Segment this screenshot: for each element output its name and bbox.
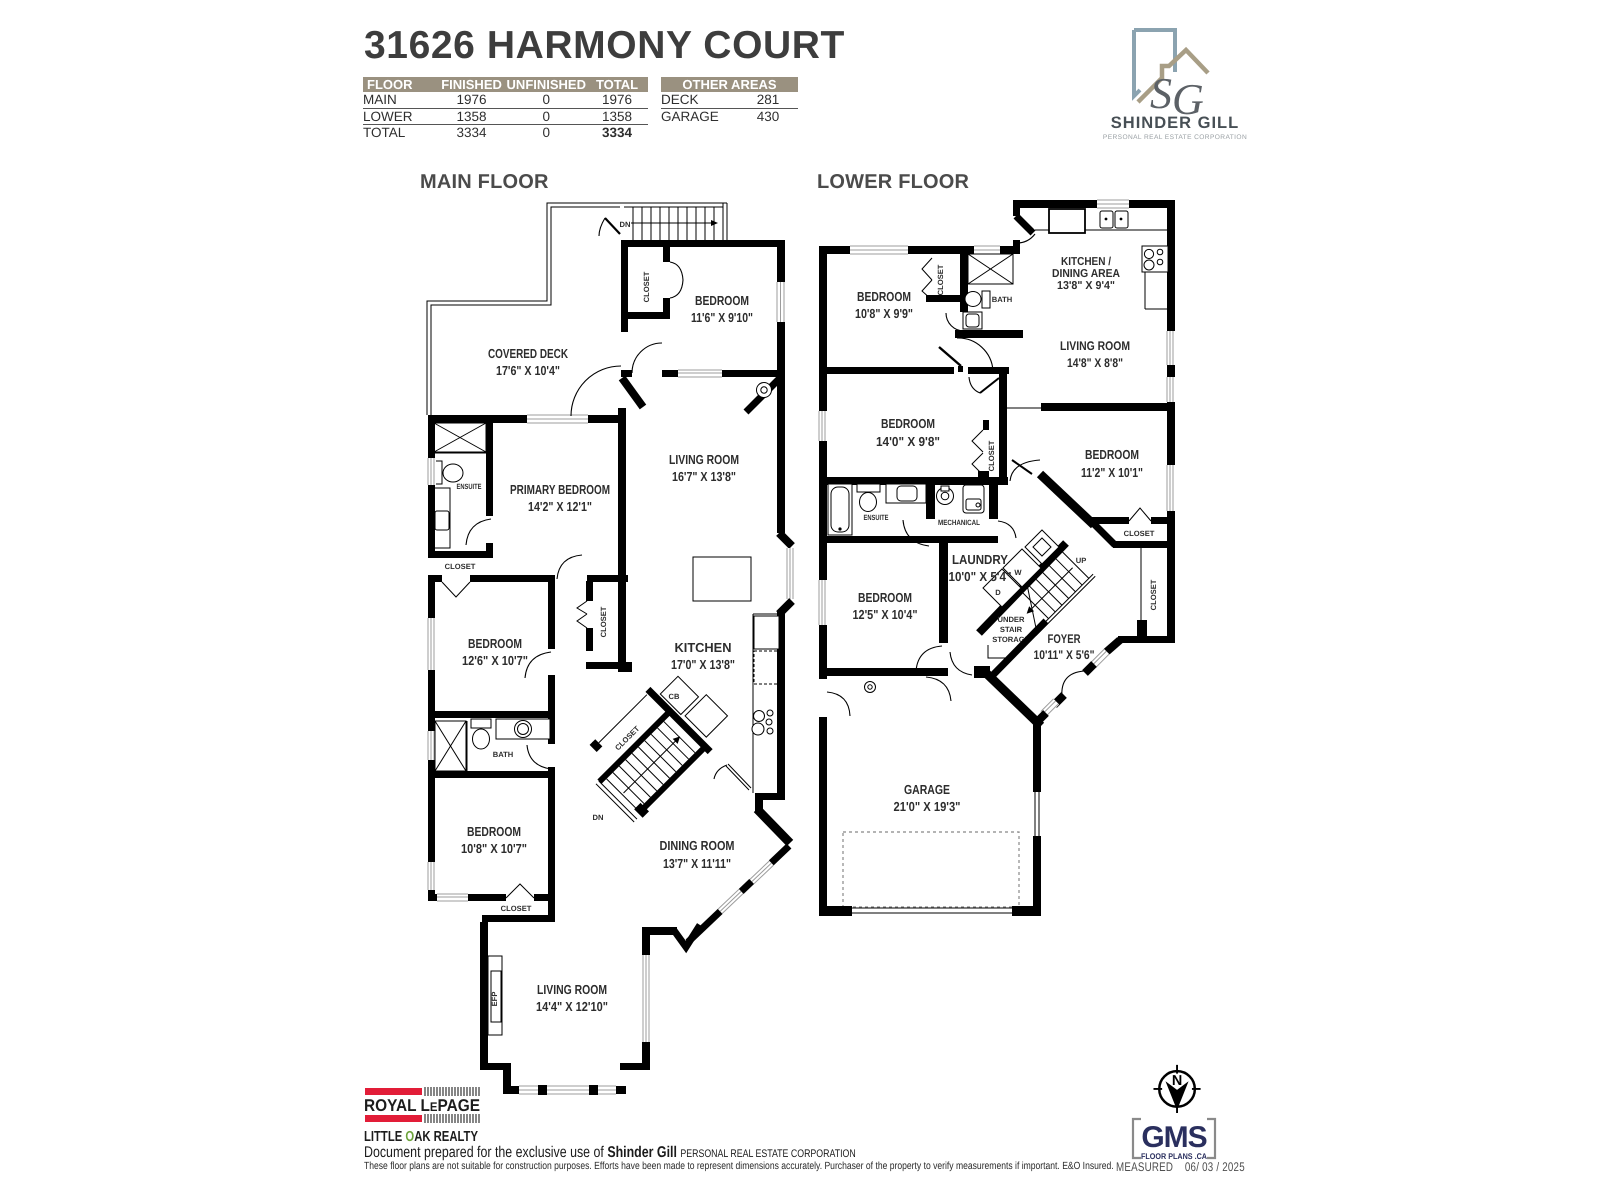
svg-text:17'0" X 13'8": 17'0" X 13'8"	[671, 657, 735, 672]
svg-text:GARAGE: GARAGE	[904, 782, 950, 797]
svg-text:KITCHEN: KITCHEN	[675, 640, 732, 655]
svg-text:CB: CB	[669, 692, 680, 701]
svg-text:DN: DN	[593, 813, 604, 822]
svg-text:10'8" X 9'9": 10'8" X 9'9"	[855, 306, 913, 321]
svg-text:KITCHEN /: KITCHEN /	[1061, 256, 1112, 268]
svg-text:ENSUITE: ENSUITE	[457, 482, 482, 491]
svg-text:UP: UP	[1076, 556, 1087, 565]
svg-text:11'2" X 10'1": 11'2" X 10'1"	[1081, 465, 1143, 480]
svg-text:BEDROOM: BEDROOM	[468, 636, 522, 651]
svg-text:MECHANICAL: MECHANICAL	[938, 518, 980, 527]
svg-text:CLOSET: CLOSET	[1124, 529, 1155, 538]
svg-text:10'8" X 10'7": 10'8" X 10'7"	[461, 841, 527, 856]
svg-text:FLOOR PLANS .CA: FLOOR PLANS .CA	[1141, 1152, 1207, 1161]
svg-text:10'11" X 5'6": 10'11" X 5'6"	[1034, 648, 1095, 662]
svg-text:11'6" X 9'10": 11'6" X 9'10"	[691, 310, 753, 325]
svg-text:BEDROOM: BEDROOM	[467, 824, 521, 839]
svg-text:12'6" X 10'7": 12'6" X 10'7"	[462, 653, 528, 668]
svg-text:LIVING ROOM: LIVING ROOM	[669, 452, 739, 467]
svg-text:14'2" X 12'1": 14'2" X 12'1"	[528, 499, 592, 514]
svg-text:10'0" X 5'4": 10'0" X 5'4"	[949, 569, 1012, 584]
svg-text:CLOSET: CLOSET	[936, 264, 945, 295]
svg-text:CLOSET: CLOSET	[1149, 579, 1158, 610]
svg-text:BEDROOM: BEDROOM	[695, 293, 749, 308]
svg-text:14'8" X 8'8": 14'8" X 8'8"	[1067, 356, 1123, 370]
svg-text:PRIMARY BEDROOM: PRIMARY BEDROOM	[510, 482, 610, 497]
svg-text:12'5" X 10'4": 12'5" X 10'4"	[853, 607, 918, 622]
svg-text:DINING ROOM: DINING ROOM	[660, 838, 735, 853]
svg-text:14'4" X 12'10": 14'4" X 12'10"	[536, 999, 608, 1014]
svg-text:BATH: BATH	[992, 295, 1013, 304]
svg-text:CLOSET: CLOSET	[987, 440, 996, 471]
svg-text:STAIR: STAIR	[1000, 625, 1023, 634]
svg-text:ROYAL LEPAGE: ROYAL LEPAGE	[364, 1096, 480, 1115]
svg-text:LAUNDRY: LAUNDRY	[952, 552, 1008, 567]
svg-text:LIVING ROOM: LIVING ROOM	[537, 982, 607, 997]
svg-text:13'7" X 11'11": 13'7" X 11'11"	[663, 856, 731, 871]
svg-text:GMS: GMS	[1141, 1121, 1206, 1154]
svg-text:LIVING ROOM: LIVING ROOM	[1060, 339, 1130, 353]
svg-text:FOYER: FOYER	[1048, 632, 1081, 646]
svg-text:17'6" X 10'4": 17'6" X 10'4"	[496, 363, 560, 378]
svg-text:BEDROOM: BEDROOM	[1085, 447, 1139, 462]
svg-text:16'7" X 13'8": 16'7" X 13'8"	[672, 469, 736, 484]
svg-text:CLOSET: CLOSET	[642, 271, 651, 302]
svg-text:14'0" X 9'8": 14'0" X 9'8"	[876, 434, 940, 449]
svg-text:CLOSET: CLOSET	[599, 606, 608, 637]
svg-text:D: D	[995, 588, 1001, 597]
svg-text:EFP: EFP	[490, 992, 499, 1007]
svg-text:DINING AREA: DINING AREA	[1052, 268, 1120, 280]
svg-text:BEDROOM: BEDROOM	[881, 416, 935, 431]
svg-text:BEDROOM: BEDROOM	[857, 289, 911, 304]
svg-text:CLOSET: CLOSET	[501, 904, 532, 913]
svg-text:COVERED DECK: COVERED DECK	[488, 346, 568, 361]
svg-text:LITTLE OAK REALTY: LITTLE OAK REALTY	[364, 1129, 478, 1145]
svg-text:ENSUITE: ENSUITE	[864, 513, 889, 522]
svg-text:CLOSET: CLOSET	[445, 562, 476, 571]
svg-text:UNDER: UNDER	[997, 615, 1025, 624]
svg-text:BATH: BATH	[493, 750, 514, 759]
svg-text:W: W	[1014, 568, 1022, 577]
svg-text:BEDROOM: BEDROOM	[858, 590, 912, 605]
svg-text:21'0" X 19'3": 21'0" X 19'3"	[894, 799, 961, 814]
svg-text:N: N	[1172, 1073, 1182, 1089]
svg-text:13'8" X 9'4": 13'8" X 9'4"	[1057, 280, 1115, 292]
svg-text:DN: DN	[620, 220, 631, 229]
